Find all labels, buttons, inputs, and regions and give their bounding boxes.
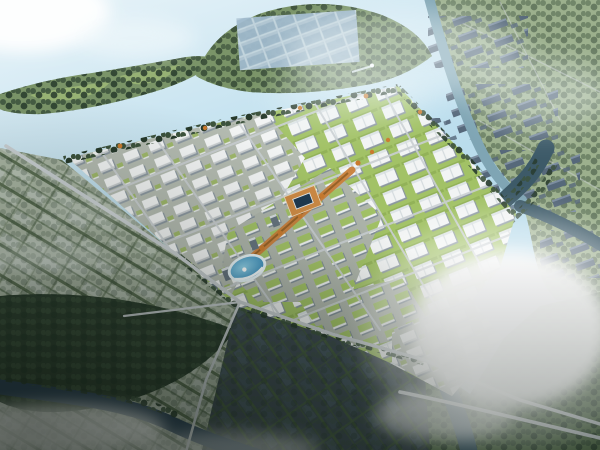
scene-svg xyxy=(0,0,600,450)
aerial-render-image xyxy=(0,0,600,450)
vignette-bottom-left xyxy=(0,0,600,450)
